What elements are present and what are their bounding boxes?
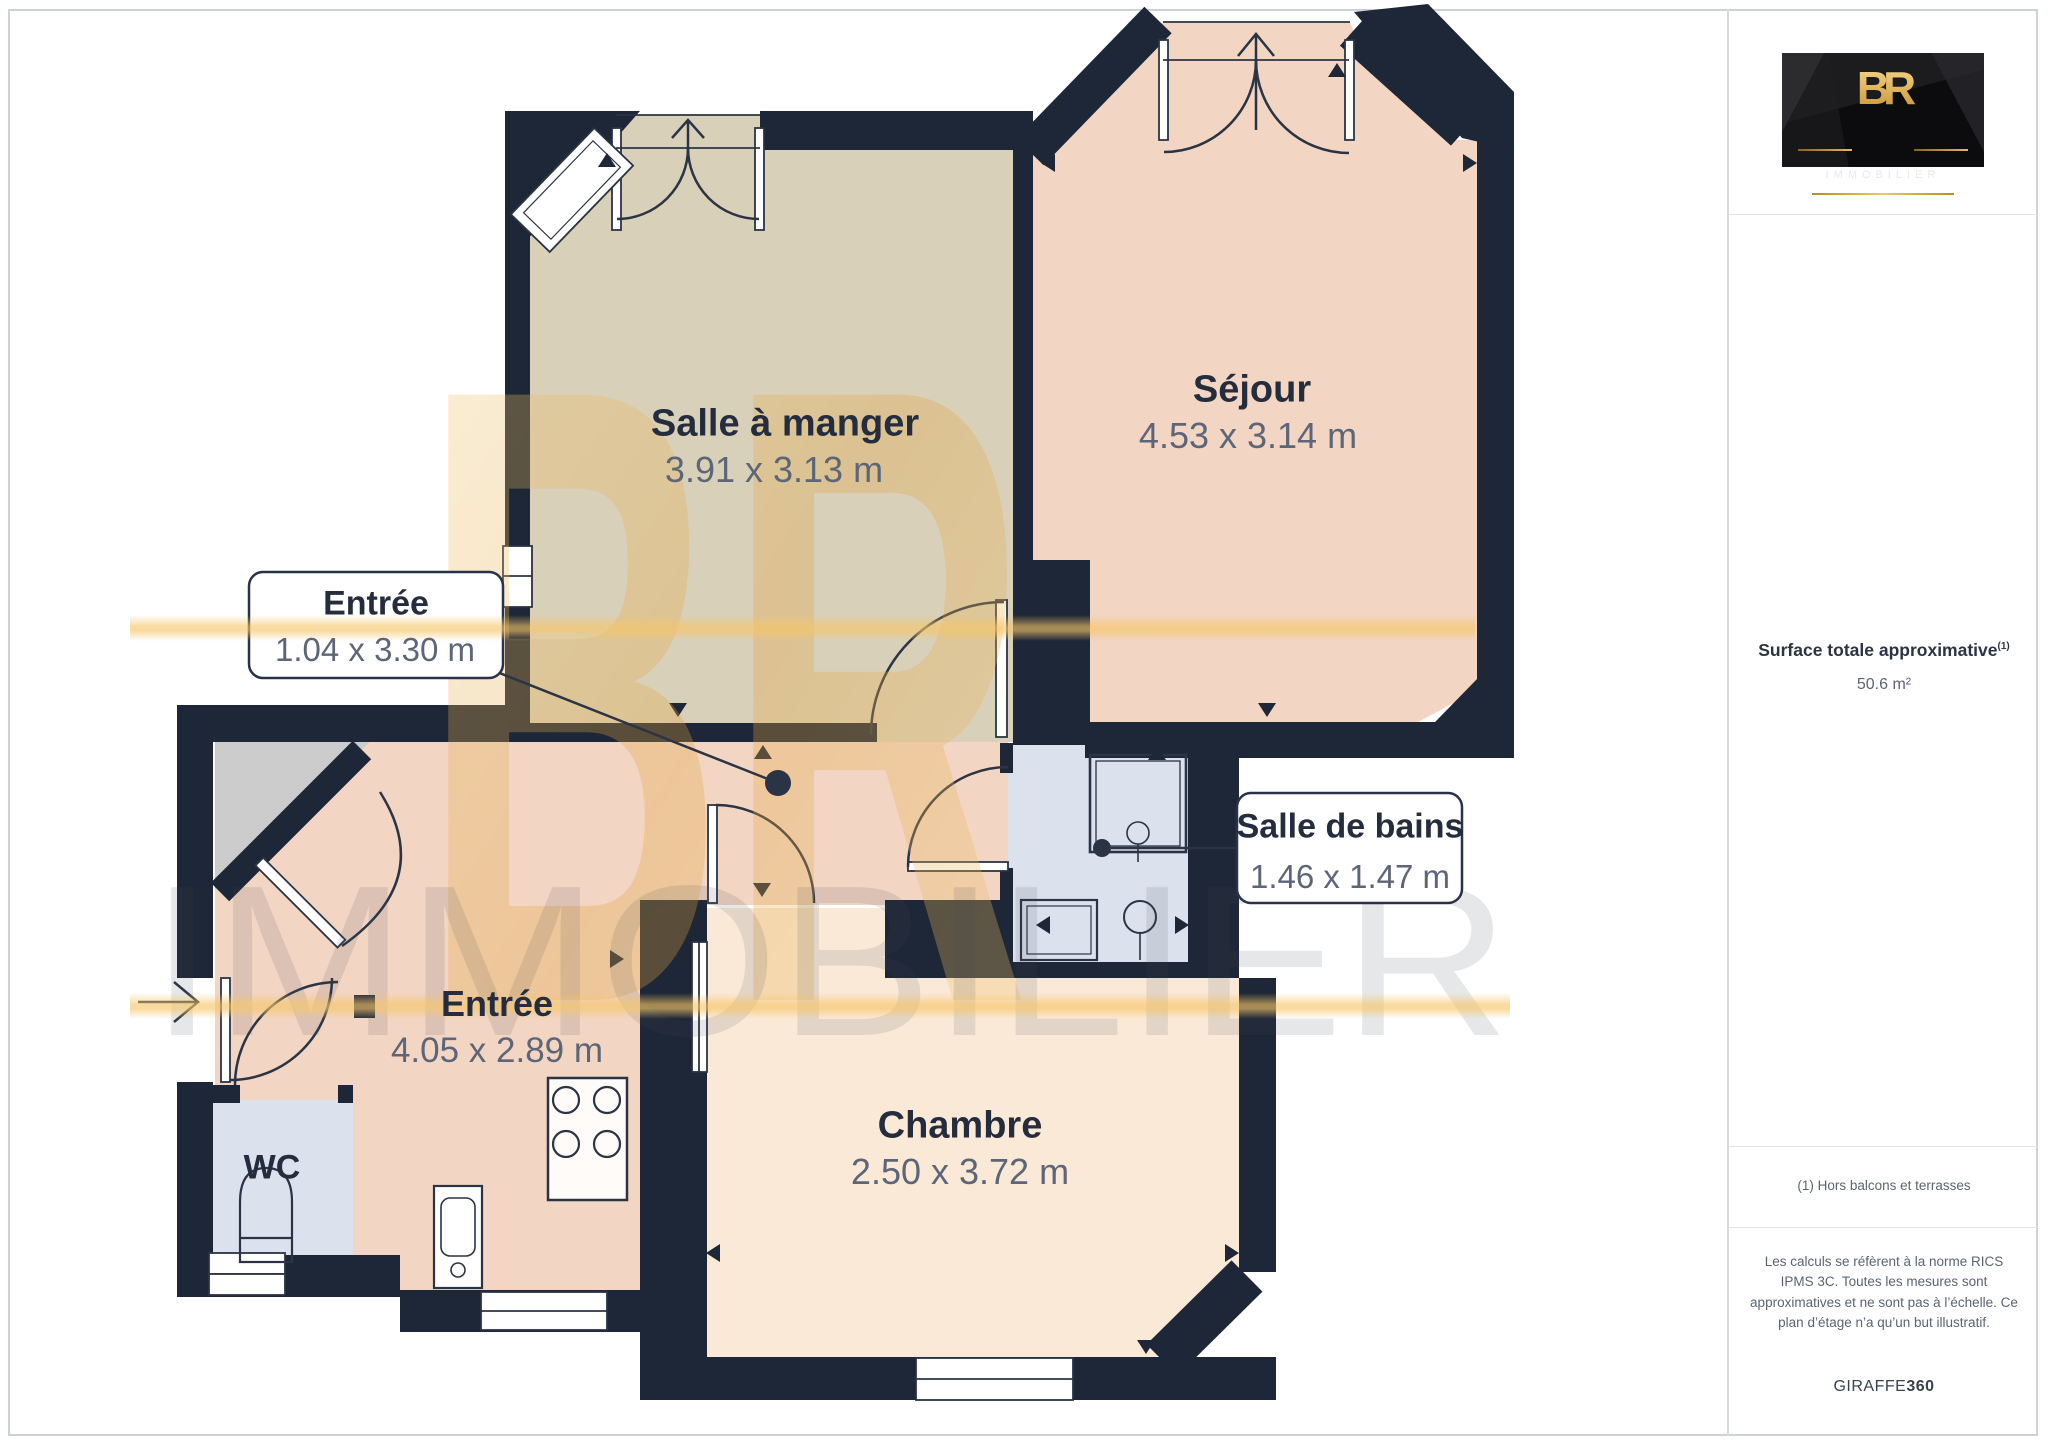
legal-disclaimer: Les calculs se réfèrent à la norme RICS … [1748, 1252, 2020, 1333]
room-label-salle-a-manger: Salle à manger [651, 403, 919, 446]
callout-label-salle-de-bains: Salle de bains [1237, 808, 1464, 847]
floorplan-drawing: BR IMMOBILIER [0, 0, 1727, 1448]
room-dims-entree: 4.05 x 2.89 m [391, 1031, 603, 1071]
agency-logo: BR IMMOBILIER [1782, 53, 1984, 167]
callout-dims-salle-de-bains: 1.46 x 1.47 m [1250, 858, 1450, 896]
callout-anchor-dot [765, 770, 791, 796]
room-dims-sejour: 4.53 x 3.14 m [1139, 415, 1357, 457]
surface-total-superscript: (1) [1998, 641, 2010, 652]
kitchen-sink-icon [434, 1186, 482, 1288]
room-dims-chambre: 2.50 x 3.72 m [851, 1151, 1069, 1193]
sidebar-section-divider [1729, 1146, 2038, 1147]
room-dims-salle-a-manger: 3.91 x 3.13 m [665, 449, 883, 491]
room-label-chambre: Chambre [878, 1105, 1043, 1148]
giraffe360-brand-suffix: 360 [1906, 1378, 1934, 1395]
logo-rule-right [1914, 149, 1968, 151]
surface-footnote: (1) Hors balcons et terrasses [1744, 1178, 2024, 1193]
callout-label-entree-couloir: Entrée [323, 585, 429, 624]
room-label-entree: Entrée [441, 983, 553, 1025]
giraffe360-brand: GIRAFFE360 [1744, 1378, 2024, 1396]
surface-total-value: 50.6 m² [1744, 676, 2024, 694]
surface-total-label: Surface totale approximative(1) [1744, 640, 2024, 661]
agency-logo-name: IMMOBILIER [1782, 169, 1984, 181]
sidebar-section-divider [1729, 1227, 2038, 1228]
logo-underline [1812, 193, 1954, 195]
room-label-sejour: Séjour [1193, 369, 1311, 412]
giraffe360-brand-name: GIRAFFE [1833, 1378, 1906, 1395]
callout-dims-entree-couloir: 1.04 x 3.30 m [275, 631, 475, 669]
agency-logo-monogram: BR [1782, 61, 1984, 115]
callout-anchor-dot [1093, 839, 1111, 857]
surface-total-label-text: Surface totale approximative [1758, 640, 1997, 660]
logo-rule-left [1798, 149, 1852, 151]
sidebar-divider [1727, 9, 1729, 1436]
room-label-wc: WC [244, 1149, 301, 1188]
sidebar-section-divider [1729, 214, 2038, 215]
